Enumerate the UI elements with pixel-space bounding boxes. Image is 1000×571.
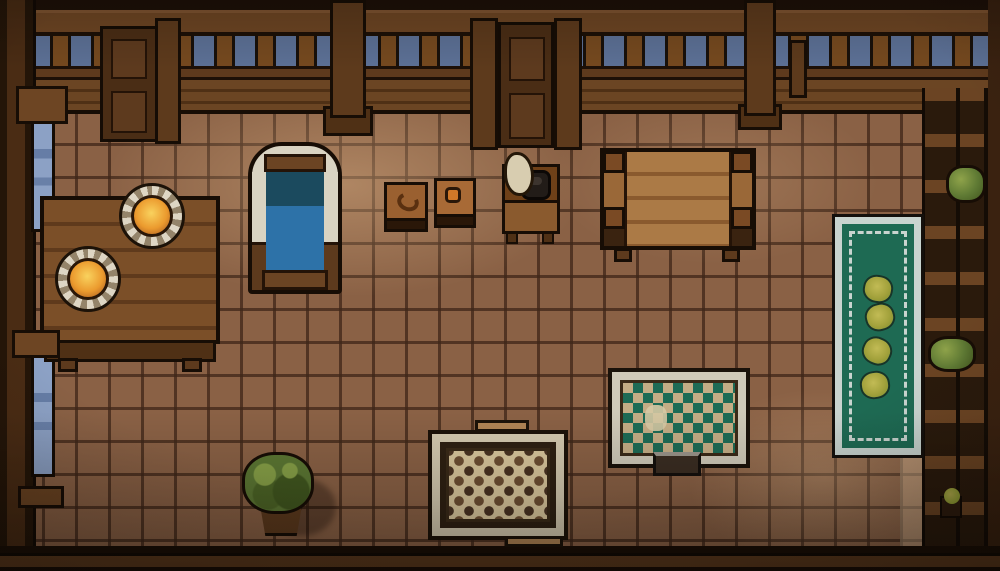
small-flower[interactable] [944, 488, 960, 504]
table-planks [624, 152, 732, 246]
table-corner-post [731, 151, 753, 173]
wall-post-center [330, 0, 366, 118]
right-edge-beam [988, 0, 1000, 571]
table-leg [182, 358, 202, 372]
bench[interactable] [505, 536, 563, 547]
table-corner-post [731, 207, 753, 229]
shelf-divider [956, 88, 960, 556]
glowing-food [67, 258, 109, 300]
stool-with-food[interactable] [384, 182, 428, 232]
door-panel [509, 37, 545, 81]
potted-plant[interactable] [242, 452, 314, 514]
table-leg [58, 358, 78, 372]
checker-rug[interactable] [428, 430, 568, 540]
table-corner-post [603, 151, 625, 173]
door-panel [509, 93, 545, 139]
bed-headboard [264, 154, 326, 172]
bench[interactable] [653, 452, 701, 476]
big-table[interactable] [600, 148, 756, 250]
nightstand-leg [506, 232, 518, 244]
door-left[interactable] [100, 26, 158, 142]
bed-rail [252, 172, 266, 242]
door-frame-post [554, 18, 582, 150]
glowing-food [131, 195, 173, 237]
plate-of-food[interactable] [119, 183, 185, 249]
bed-footboard [262, 270, 328, 290]
bottom-wall-plank [0, 553, 1000, 567]
food-item-icon [445, 187, 461, 203]
stool-with-food[interactable] [434, 178, 476, 228]
wall-post-right [744, 0, 776, 116]
window-lower-left [31, 355, 55, 477]
window-sill [18, 486, 64, 508]
door-panel [111, 91, 147, 133]
flour-sack[interactable] [504, 152, 534, 196]
runner-rug[interactable] [832, 214, 924, 458]
bed-blanket [266, 206, 324, 274]
diamond-pattern [620, 380, 738, 456]
table-corner-post [603, 207, 625, 229]
bed[interactable] [248, 142, 342, 294]
door-panel [111, 39, 147, 79]
plate-of-food[interactable] [55, 246, 121, 312]
door-frame-post [470, 18, 498, 150]
door-center[interactable] [498, 22, 554, 148]
wall-post [155, 18, 181, 144]
bench[interactable] [475, 420, 529, 432]
game-viewport [0, 0, 1000, 571]
bed-rail [324, 172, 338, 242]
wall-post-small [789, 40, 807, 98]
rug-worn-patch [645, 405, 667, 431]
shelf-plant-upper[interactable] [946, 165, 986, 203]
rug-inner-border [849, 231, 907, 441]
shelf-plant-lower[interactable] [928, 336, 976, 372]
nightstand-leg [542, 232, 554, 244]
wall-shelf-box[interactable] [16, 86, 68, 124]
table-foot [614, 248, 632, 262]
checker-pattern [446, 448, 550, 522]
bed-sheet [266, 172, 324, 206]
bench[interactable] [12, 330, 60, 358]
table-foot [722, 248, 740, 262]
